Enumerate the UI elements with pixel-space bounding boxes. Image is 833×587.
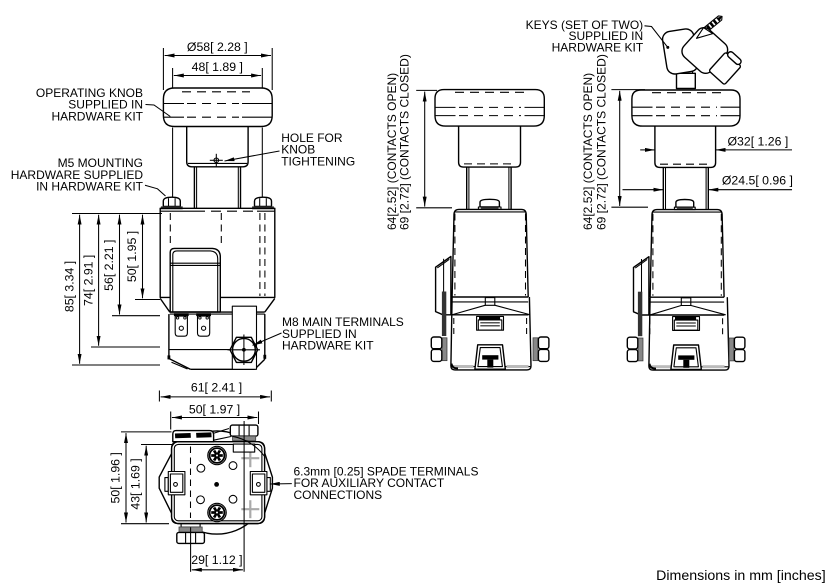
svg-text:CONNECTIONS: CONNECTIONS: [294, 488, 383, 502]
svg-text:48[ 1.89 ]: 48[ 1.89 ]: [192, 60, 243, 74]
svg-text:56[ 2.21 ]: 56[ 2.21 ]: [102, 240, 116, 291]
svg-text:HARDWARE KIT: HARDWARE KIT: [51, 109, 143, 123]
svg-text:61[ 2.41 ]: 61[ 2.41 ]: [191, 381, 242, 395]
svg-text:69 [2.72] (CONTACTS CLOSED): 69 [2.72] (CONTACTS CLOSED): [595, 54, 609, 230]
svg-text:50[ 1.97 ]: 50[ 1.97 ]: [189, 403, 240, 417]
svg-text:50[ 1.95 ]: 50[ 1.95 ]: [125, 231, 139, 282]
svg-text:Dimensions in mm [inches]: Dimensions in mm [inches]: [656, 568, 826, 584]
svg-text:74[ 2.91 ]: 74[ 2.91 ]: [82, 255, 96, 306]
svg-text:64[2.52] (CONTACTS OPEN): 64[2.52] (CONTACTS OPEN): [581, 73, 595, 230]
svg-text:TIGHTENING: TIGHTENING: [281, 154, 355, 168]
svg-text:50[ 1.96 ]: 50[ 1.96 ]: [108, 452, 122, 503]
svg-text:HARDWARE KIT: HARDWARE KIT: [282, 339, 374, 353]
svg-text:Ø32[ 1.26 ]: Ø32[ 1.26 ]: [727, 135, 788, 149]
svg-text:29[ 1.12 ]: 29[ 1.12 ]: [191, 553, 242, 567]
svg-text:IN HARDWARE KIT: IN HARDWARE KIT: [36, 180, 144, 194]
svg-text:Ø24.5[ 0.96 ]: Ø24.5[ 0.96 ]: [722, 174, 793, 188]
svg-text:69 [2.72] (CONTACTS CLOSED): 69 [2.72] (CONTACTS CLOSED): [398, 54, 412, 230]
svg-text:HARDWARE KIT: HARDWARE KIT: [552, 41, 644, 55]
svg-text:43[ 1.69 ]: 43[ 1.69 ]: [128, 458, 142, 509]
svg-text:Ø58[ 2.28 ]: Ø58[ 2.28 ]: [187, 40, 248, 54]
svg-text:85[ 3.34 ]: 85[ 3.34 ]: [63, 261, 77, 312]
